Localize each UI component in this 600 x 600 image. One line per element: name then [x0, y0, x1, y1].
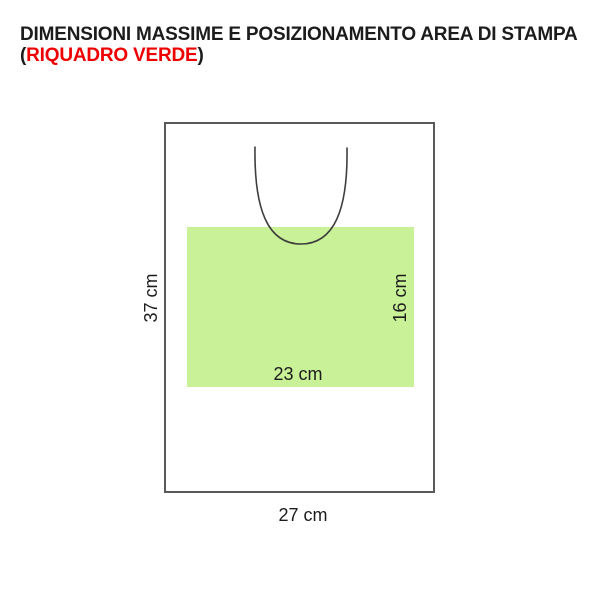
print-area-width-label: 23 cm — [258, 363, 338, 385]
bag-height-label: 37 cm — [140, 258, 162, 338]
bag-width-label: 27 cm — [263, 504, 343, 526]
bag-print-diagram: 37 cm 16 cm 23 cm 27 cm — [0, 0, 600, 600]
print-area-spec-page: DIMENSIONI MASSIME E POSIZIONAMENTO AREA… — [0, 0, 600, 600]
print-area-height-label: 16 cm — [389, 258, 411, 338]
